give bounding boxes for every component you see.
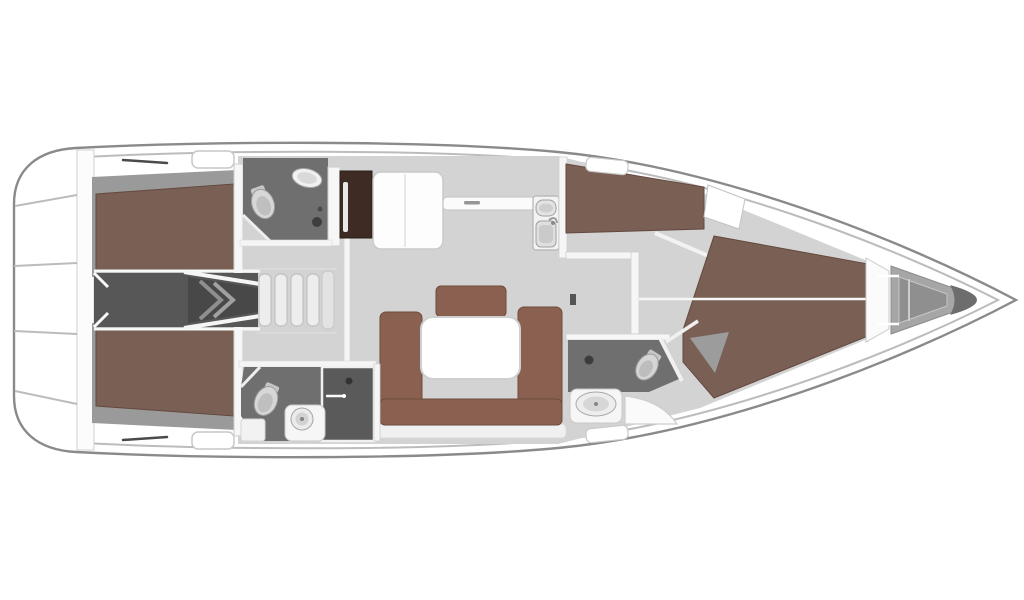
head-wall-right: [374, 364, 380, 441]
aft-berth-starboard: [96, 184, 234, 272]
sink-basin-bottom-inner: [539, 225, 553, 243]
settee-base: [374, 424, 566, 438]
galley-counter-strip: [443, 197, 535, 210]
yacht-layout-plan: Top-down interior layout plan of a saili…: [0, 0, 1024, 600]
shower-control: [318, 207, 323, 212]
basin-drain: [594, 402, 598, 406]
shower-drain: [312, 217, 322, 227]
head-floor: [568, 340, 679, 392]
step-tread: [259, 274, 271, 326]
aft-cabin-port: [92, 323, 237, 430]
aft-berth-port: [96, 328, 234, 416]
step-tread: [291, 274, 303, 326]
head-wall-top: [566, 334, 670, 340]
engine-compartment: [94, 271, 260, 329]
counter-handle: [464, 201, 480, 205]
transom-band: [77, 150, 94, 450]
deck-hatch: [192, 432, 234, 449]
settee-top-bench: [436, 286, 506, 317]
step-tread: [307, 274, 319, 326]
forward-bulkhead: [866, 258, 889, 342]
shower-drain: [346, 378, 353, 385]
aft-bulkhead-wall-top: [234, 164, 243, 278]
galley-counter-block: [373, 172, 443, 249]
head-seat: [241, 419, 265, 441]
side-cabin-wall: [566, 252, 639, 259]
stove-handle: [343, 182, 348, 232]
aft-cabin-starboard: [92, 170, 237, 277]
basin-drain: [300, 417, 304, 421]
yacht-layout-screenshot: Top-down interior layout plan of a saili…: [0, 0, 1024, 600]
corridor-wall: [631, 252, 639, 334]
salon-table: [421, 317, 520, 379]
aft-head-port: [239, 361, 380, 441]
companionway-bulkhead: [344, 237, 350, 365]
step-tread: [275, 274, 287, 326]
shower-door-knob: [342, 394, 346, 398]
settee-bottom-bench: [380, 399, 562, 425]
step-landing: [322, 271, 334, 329]
sink-basin-top-inner: [539, 204, 553, 213]
aft-bulkhead-wall-bottom: [234, 322, 243, 436]
door-handle: [570, 294, 576, 305]
head-wall-bottom: [240, 240, 332, 246]
deck-hatch: [192, 151, 234, 168]
head-wall: [328, 167, 340, 246]
sink-faucet-base: [551, 221, 555, 225]
shower-drain: [585, 356, 594, 365]
